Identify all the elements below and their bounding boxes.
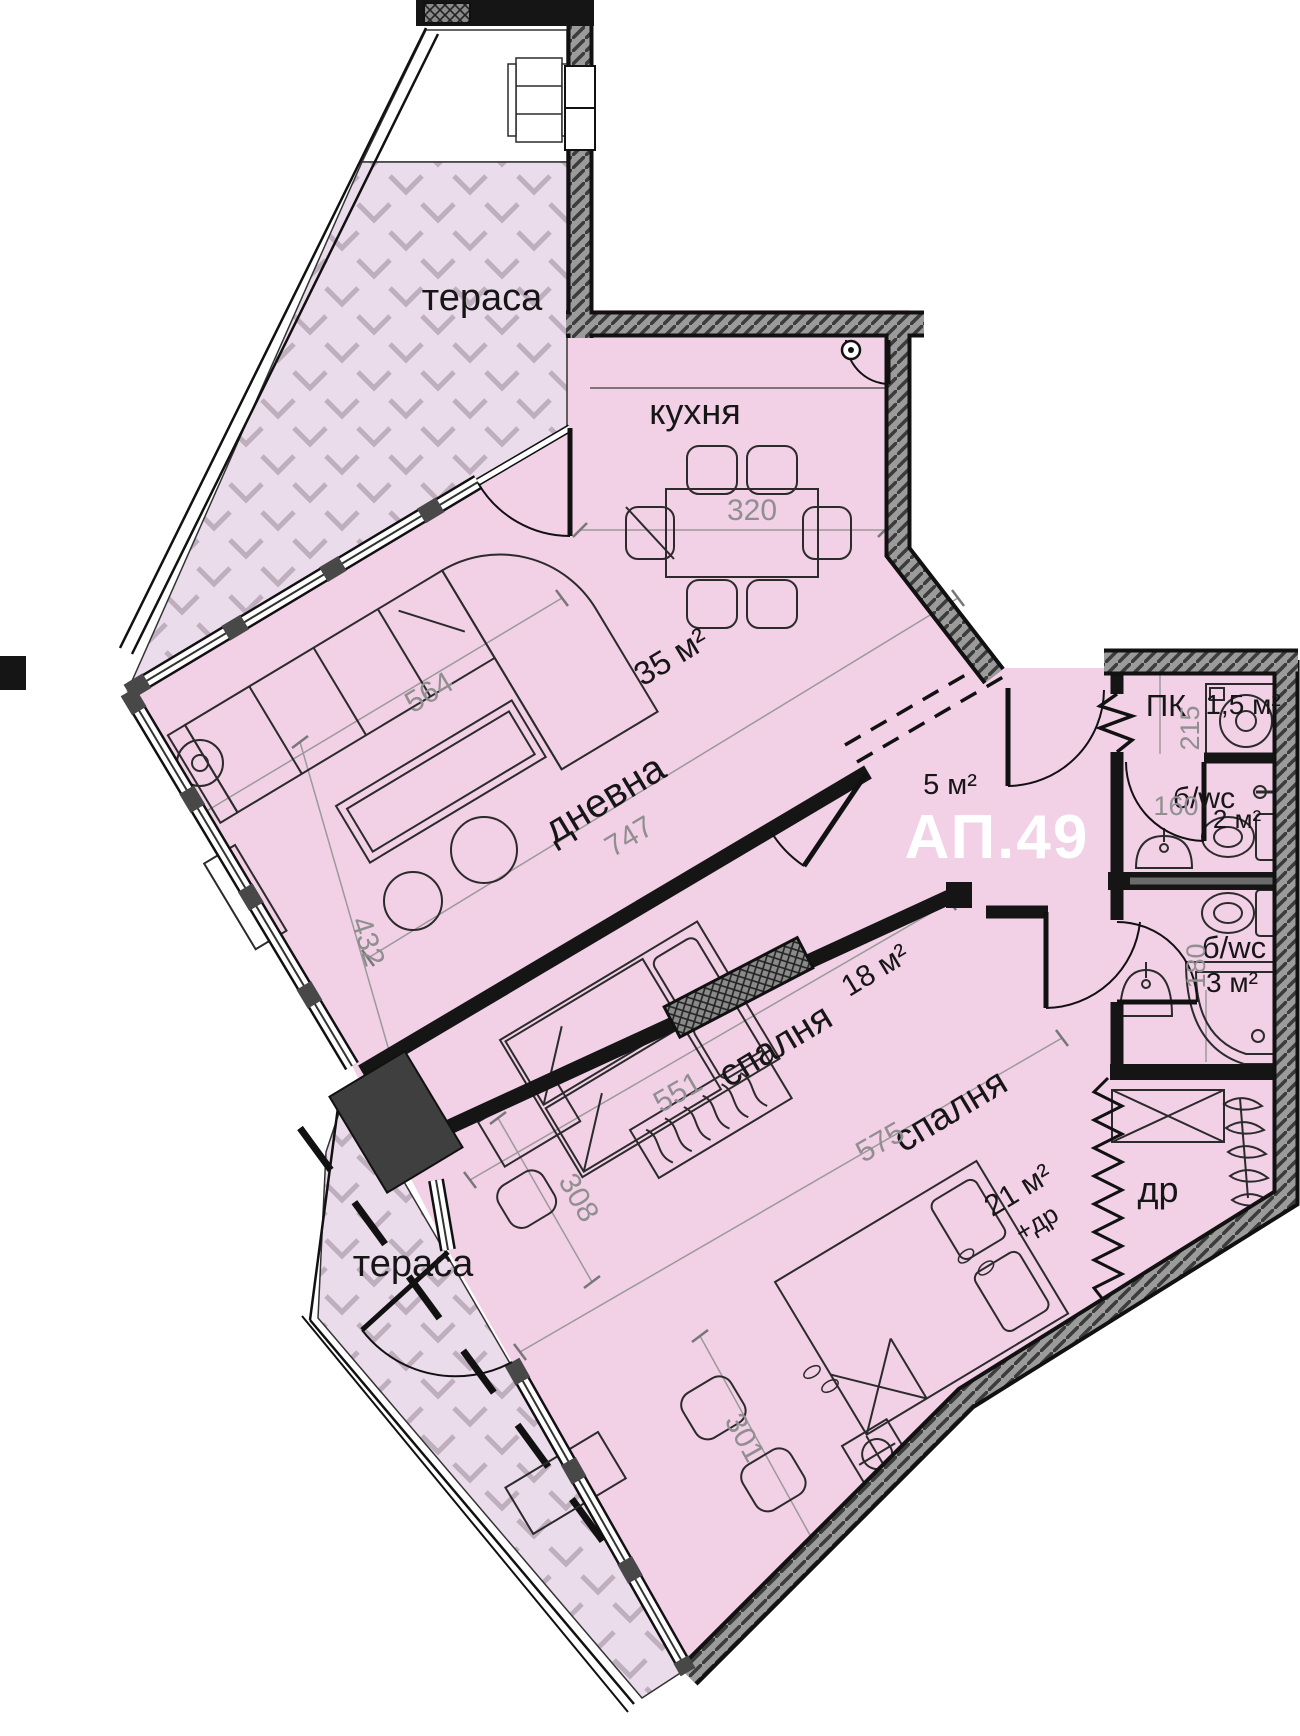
dim-320: 320 xyxy=(727,494,777,527)
terrace-bench xyxy=(508,58,570,142)
dim-160: 160 xyxy=(1153,791,1198,821)
top-structure-hatch xyxy=(424,3,470,23)
label-terrace-bottom: тераса xyxy=(353,1243,474,1285)
label-bath2-area: 3 м² xyxy=(1206,967,1258,998)
label-kitchen: кухня xyxy=(649,391,741,432)
label-apartment-number: АП.49 xyxy=(905,803,1090,872)
floorplan-page: тераса кухня дневна 35 м² 5 м² АП.49 ПК … xyxy=(0,0,1300,1736)
label-terrace-top: тераса xyxy=(422,277,543,319)
label-bath2: б/wc xyxy=(1202,930,1266,965)
wall-stub-left xyxy=(0,656,26,690)
label-hall-area: 5 м² xyxy=(923,769,977,801)
wall-endcap xyxy=(946,882,972,908)
label-bath1-area: 2 м² xyxy=(1213,804,1262,834)
floorplan-drawing: тераса кухня дневна 35 м² 5 м² АП.49 ПК … xyxy=(0,0,1300,1736)
label-pk-area: 1,5 м² xyxy=(1205,689,1280,720)
dim-215: 215 xyxy=(1175,705,1205,750)
label-closet: др xyxy=(1137,1169,1178,1210)
dim-180: 180 xyxy=(1181,943,1211,988)
